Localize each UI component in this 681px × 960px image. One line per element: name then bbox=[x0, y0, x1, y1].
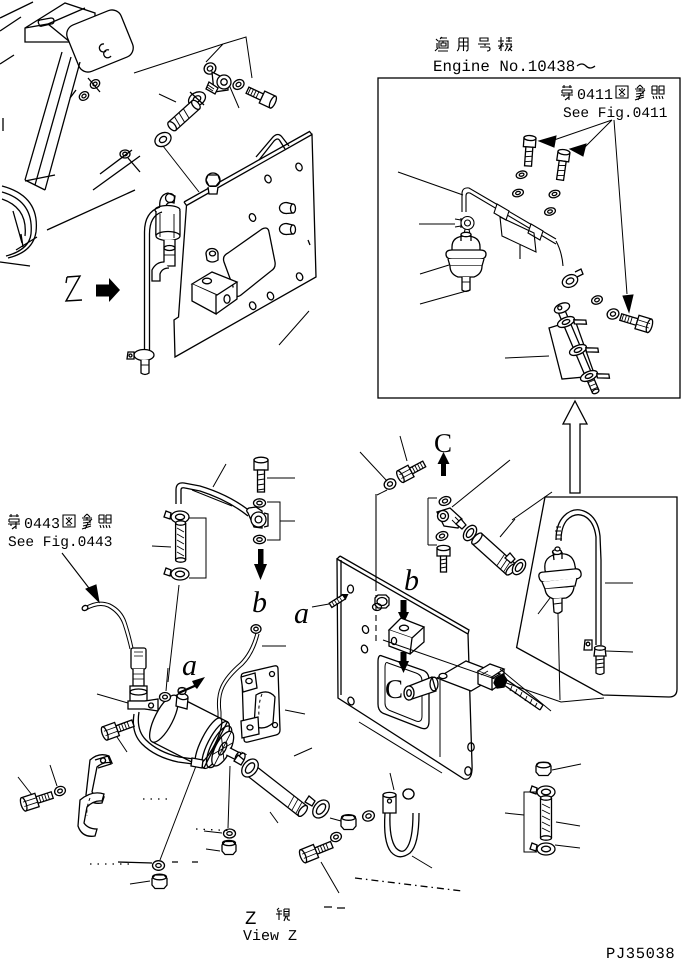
svg-text:a: a bbox=[182, 649, 197, 682]
svg-text:PJ35038: PJ35038 bbox=[606, 945, 675, 960]
svg-text:a: a bbox=[294, 597, 309, 630]
svg-text:Engine No.10438: Engine No.10438 bbox=[433, 58, 575, 76]
svg-text:0411: 0411 bbox=[577, 87, 613, 104]
svg-text:b: b bbox=[404, 564, 419, 597]
svg-text:C: C bbox=[385, 674, 403, 704]
svg-text:0443: 0443 bbox=[24, 516, 60, 533]
svg-text:View Z: View Z bbox=[243, 928, 297, 945]
svg-text:See Fig.0443: See Fig.0443 bbox=[8, 535, 112, 551]
svg-text:See Fig.0411: See Fig.0411 bbox=[563, 106, 667, 122]
svg-text:Z: Z bbox=[245, 908, 256, 930]
svg-text:b: b bbox=[252, 586, 267, 619]
